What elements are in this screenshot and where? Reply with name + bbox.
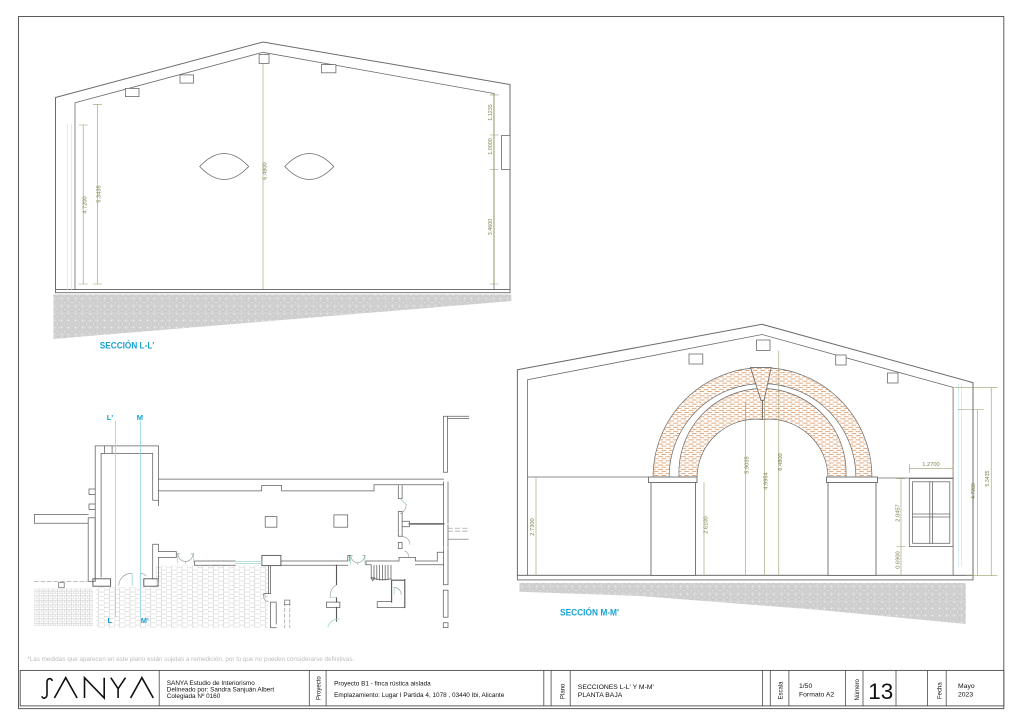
svg-text:2.6100: 2.6100 bbox=[704, 516, 710, 533]
svg-text:4.7200: 4.7200 bbox=[83, 196, 89, 213]
svg-text:1/50: 1/50 bbox=[799, 683, 812, 690]
svg-text:SECCIÓN L-L': SECCIÓN L-L' bbox=[100, 340, 155, 351]
svg-text:Fecha: Fecha bbox=[938, 682, 944, 699]
svg-text:M: M bbox=[137, 413, 143, 422]
svg-text:2.0457: 2.0457 bbox=[896, 504, 902, 521]
svg-text:L': L' bbox=[107, 413, 114, 422]
svg-text:6.4800: 6.4800 bbox=[778, 453, 784, 470]
svg-text:Proyecto B1 - finca rústica ai: Proyecto B1 - finca rústica aislada bbox=[334, 681, 431, 688]
svg-text:5.3435: 5.3435 bbox=[985, 470, 991, 486]
svg-text:SECCIÓN M-M': SECCIÓN M-M' bbox=[560, 607, 619, 618]
svg-text:PLANTA BAJA: PLANTA BAJA bbox=[578, 692, 623, 699]
svg-text:5.9035: 5.9035 bbox=[745, 456, 751, 473]
svg-text:2023: 2023 bbox=[958, 692, 973, 699]
svg-text:1.1235: 1.1235 bbox=[488, 104, 494, 121]
svg-text:0.6900: 0.6900 bbox=[896, 551, 902, 568]
svg-text:Número: Número bbox=[855, 678, 861, 700]
svg-text:2.7300: 2.7300 bbox=[530, 518, 536, 535]
svg-text:SECCIONES L-L' Y M-M': SECCIONES L-L' Y M-M' bbox=[578, 684, 654, 691]
svg-text:3.4600: 3.4600 bbox=[488, 219, 494, 236]
svg-text:5.3435: 5.3435 bbox=[97, 185, 103, 202]
svg-text:1.2700: 1.2700 bbox=[922, 462, 939, 468]
svg-text:Mayo: Mayo bbox=[958, 683, 975, 690]
svg-text:Proyecto: Proyecto bbox=[317, 676, 323, 700]
svg-text:L: L bbox=[108, 616, 113, 625]
svg-text:M': M' bbox=[141, 616, 149, 625]
svg-text:Colegiada Nº 0160: Colegiada Nº 0160 bbox=[167, 693, 221, 700]
svg-text:Escala: Escala bbox=[779, 681, 785, 700]
svg-text:4.7200: 4.7200 bbox=[971, 483, 977, 499]
svg-text:Formato A2: Formato A2 bbox=[799, 692, 834, 699]
svg-text:*Las medidas que aparecen en e: *Las medidas que aparecen en este plano … bbox=[27, 656, 354, 663]
svg-text:4.9954: 4.9954 bbox=[764, 472, 770, 489]
svg-text:1.0000: 1.0000 bbox=[488, 138, 494, 155]
svg-text:6.4800: 6.4800 bbox=[262, 162, 268, 179]
svg-text:Emplazamiento: Lugar I Partida: Emplazamiento: Lugar I Partida 4, 1078 ,… bbox=[334, 692, 505, 699]
svg-text:13: 13 bbox=[868, 679, 893, 704]
svg-text:Plano: Plano bbox=[561, 683, 567, 699]
